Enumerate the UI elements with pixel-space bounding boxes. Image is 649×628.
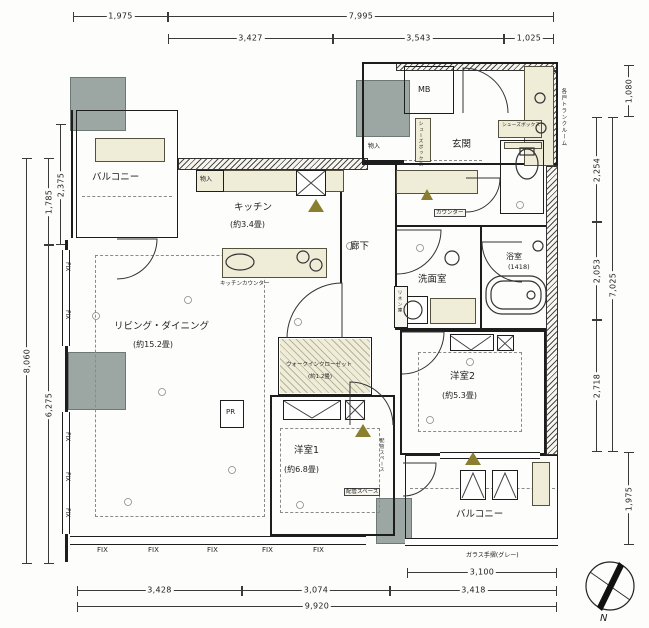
dim-right-b: 2,053 [596, 222, 597, 320]
dim-right-bottom: 1,975 [628, 452, 629, 545]
label-fix-2: FIX [148, 546, 159, 554]
balcony-bottom-rail [405, 538, 558, 546]
label-pr: PR [226, 408, 235, 416]
room-size-kitchen: (約3.4畳) [230, 220, 265, 229]
label-pipe-space: 配管スペース [344, 488, 380, 496]
dim-right-total: 7,025 [612, 117, 613, 452]
label-kitchen-counter: キッチンカウンター [220, 281, 270, 287]
dim-bottom-b: 3,074 [242, 590, 390, 591]
dim-bottom-total: 9,920 [77, 606, 557, 607]
ld-ceiling-dash [95, 255, 265, 517]
vanity-cabinet [430, 298, 476, 324]
room-label-bath: 浴室 [506, 252, 522, 261]
dim-left-inner: 2,375 [60, 124, 61, 245]
dim-top-a: 3,427 [168, 38, 333, 39]
bathtub-inner [491, 281, 541, 309]
dim-bottom-balcony: 3,100 [407, 572, 557, 573]
slop-sink-unit [532, 462, 550, 506]
balcony-top-rail [71, 110, 73, 238]
dim-right-a: 2,254 [596, 117, 597, 222]
wall-bath-left [480, 225, 482, 330]
label-fix-left-3: FIX [63, 432, 70, 441]
label-shoe-box-right: シューズボックス [501, 123, 541, 129]
label-shoe-box-left: シューズボックス [417, 121, 423, 161]
room-label-balcony-top: バルコニー [92, 173, 139, 184]
bedroom2-window [440, 452, 540, 459]
dim-top-total: 7,995 [168, 16, 554, 17]
dim-left-total: 8,060 [26, 158, 27, 564]
door-arc-bath [482, 242, 522, 282]
dim-left-lower: 6,275 [48, 245, 49, 564]
compass-icon [586, 562, 634, 611]
label-glass-rail: ガラス手摺(グレー) [466, 553, 519, 560]
toilet-shelf [504, 142, 542, 149]
dim-right-c: 2,718 [596, 320, 597, 452]
room-size-wic: (約1.2畳) [308, 374, 332, 380]
label-fix-left-5: FIX [63, 508, 70, 517]
dim-top-left: 1,975 [73, 16, 168, 17]
label-linen: リネン庫 [396, 290, 402, 326]
ac-outdoor-unit-2 [492, 470, 518, 500]
washroom-upper-cabinet [396, 170, 478, 194]
dim-right-top: 1,080 [628, 65, 629, 117]
bathtub-drain [527, 291, 535, 299]
label-storage-kitchen: 物入 [200, 177, 212, 184]
bedroom2-closet-box [497, 335, 514, 351]
ac-outdoor-unit-1 [460, 470, 486, 500]
room-size-bedroom2: (約5.3畳) [442, 391, 477, 400]
compass-north-label: N [600, 613, 607, 625]
label-storage-entrance: 物入 [368, 144, 380, 151]
toilet-room [500, 140, 544, 214]
room-label-washroom: 洗面室 [418, 275, 447, 286]
room-label-kitchen: キッチン [234, 203, 272, 214]
room-size-bedroom1: (約6.8畳) [284, 465, 319, 474]
label-fix-left-2: FIX [63, 310, 70, 319]
dim-bottom-a: 3,428 [77, 590, 242, 591]
dim-left-upper: 1,785 [48, 158, 49, 245]
fix-window-bottom [70, 536, 366, 545]
vanity-sink [445, 251, 459, 265]
range-hood-box [296, 170, 326, 196]
room-size-bath: (1418) [508, 264, 530, 271]
label-fix-3: FIX [207, 546, 218, 554]
dim-bottom-c: 3,418 [390, 590, 557, 591]
balcony-top-dashline [82, 196, 172, 197]
room-label-wic: ウォークインクローゼット [286, 362, 352, 368]
room-label-trunk: 各戸トランクルーム [560, 88, 566, 188]
door-arc-washroom [397, 230, 441, 274]
shower-head [533, 241, 543, 251]
room-label-living-dining: リビング・ダイニング [114, 322, 209, 333]
door-arc-living [287, 283, 342, 338]
label-fix-left-4: FIX [63, 472, 70, 481]
dim-top-c: 1,025 [504, 38, 554, 39]
label-fix-4: FIX [262, 546, 273, 554]
label-fix-1: FIX [97, 546, 108, 554]
room-label-bedroom2: 洋室2 [450, 372, 475, 383]
label-fix-5: FIX [313, 546, 324, 554]
floor-plan: 1,975 7,995 3,427 3,543 1,025 8,060 1,78… [0, 0, 649, 628]
kitchen-counter-island [222, 248, 327, 278]
wall-segment [362, 160, 404, 164]
room-label-entrance: 玄関 [452, 140, 471, 151]
label-pipe-space-vertical: 配管スペース [378, 438, 384, 488]
dim-top-b: 3,543 [333, 38, 504, 39]
bathtub-outer [486, 276, 546, 314]
hatched-wall-kitchen-top [178, 158, 368, 170]
wall-washroom-top [395, 225, 546, 227]
marker-triangle-kitchen [308, 199, 324, 212]
laundry-hanger-unit [95, 138, 165, 162]
room-label-corridor: 廊下 [350, 242, 369, 253]
bedroom2-closet [450, 334, 494, 351]
room-size-living-dining: (約15.2畳) [133, 340, 173, 349]
room-label-bedroom1: 洋室1 [294, 446, 319, 457]
hatched-wall-right [546, 166, 558, 455]
label-counter: カウンター [434, 209, 466, 217]
label-fix-left-1: FIX [63, 262, 70, 271]
room-label-balcony-bottom: バルコニー [456, 510, 503, 521]
room-label-mb: MB [418, 85, 430, 94]
bedroom1-closet [283, 400, 341, 420]
bedroom1-closet-box [345, 400, 365, 420]
